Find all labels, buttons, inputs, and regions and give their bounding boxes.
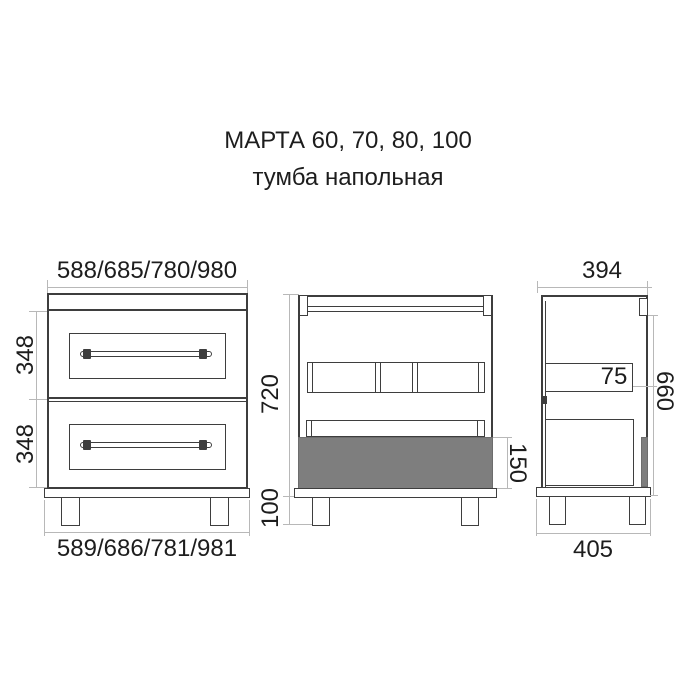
dim-label-depth-top: 394 [582,259,622,283]
upper-drawer-back-rail [307,362,485,393]
handle-mount [83,440,91,450]
rail-divider-line [312,362,313,393]
drawer-box-side [545,419,634,486]
slide-mount-bracket [483,295,492,316]
rail-divider-line [478,362,479,393]
side-top-edge [541,295,648,297]
countertop-edge-line [47,309,248,311]
dim-line [289,295,290,525]
dim-label-width-bottom: 589/686/781/981 [57,537,237,561]
dim-label-drawer-box-height: 150 [505,443,529,483]
dim-label-mount-height: 660 [652,371,676,411]
dim-label-leg-height: 100 [259,488,283,528]
dim-line [47,287,248,288]
leg [312,497,330,526]
technical-drawing: МАРТА 60, 70, 80, 100 тумба напольная 58… [0,0,690,690]
handle-mount [199,440,207,450]
dim-extension-line [44,500,45,536]
product-title: МАРТА 60, 70, 80, 100 [224,127,472,155]
dim-line [537,287,652,288]
dim-extension-line [650,495,658,496]
leg [461,497,479,526]
dim-extension-line [249,500,250,536]
lower-drawer-back-rail [306,420,485,437]
side-front-edge [541,295,543,488]
dim-extension-line [283,294,299,295]
dim-extension-line [29,399,47,400]
drawer-box-gray [298,437,493,489]
drawer-handle-2 [80,442,212,448]
dim-label-drawer2-height: 348 [14,424,38,464]
drawer-slide-gray [641,437,648,487]
carcass-top-edge [298,295,493,297]
product-subtitle: тумба напольная [253,164,444,192]
drawer-divider-line [47,401,248,402]
dim-tick [537,281,538,293]
dim-extension-line [29,311,47,312]
top-stretcher-rail [307,306,484,312]
dim-tick [47,280,48,293]
drawer-front-joint [541,396,547,404]
dim-line [44,532,250,533]
dim-extension-line [493,437,512,438]
rail-divider-line [311,420,312,437]
handle-mount [199,349,207,359]
dim-tick [247,280,248,293]
rail-divider-line [375,362,376,393]
dim-label-body-height: 720 [259,374,283,414]
wall-mount-bracket [639,298,648,316]
drawer-divider-line [47,397,248,399]
handle-mount [83,349,91,359]
leg [210,497,229,526]
rail-divider-line [380,362,381,393]
rail-divider-line [417,362,418,393]
dim-label-depth-bottom: 405 [573,538,613,562]
dim-label-drawer1-height: 348 [14,335,38,375]
drawer-handle-1 [80,351,212,357]
leg [61,497,80,526]
dim-extension-line [283,524,312,525]
dim-line [536,533,651,534]
rail-divider-line [412,362,413,393]
dim-label-width-top: 588/685/780/980 [57,259,237,283]
dim-extension-line [650,499,651,536]
rail-divider-line [477,420,478,437]
dim-extension-line [497,488,512,489]
dim-label-rail-height: 75 [601,365,628,389]
dim-extension-line [536,499,537,536]
leg [549,496,566,525]
leg [629,496,646,525]
